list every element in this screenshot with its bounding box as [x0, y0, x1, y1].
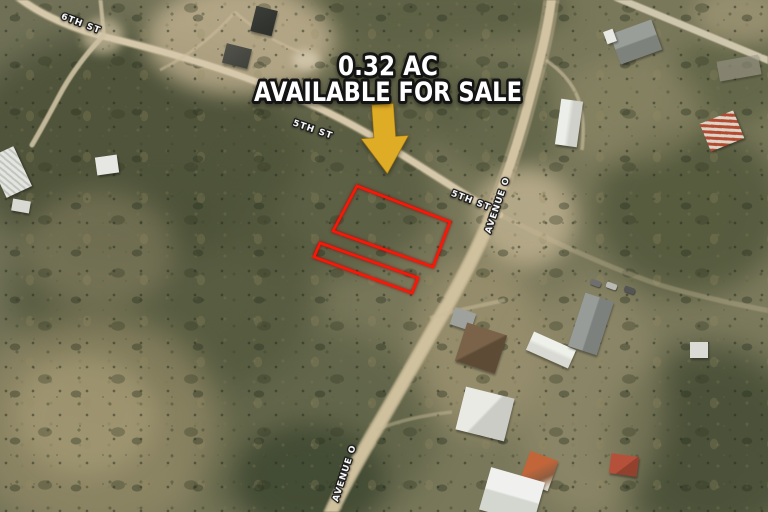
down-arrow-icon	[359, 102, 412, 175]
street-label-5th-st-east: 5TH ST	[449, 189, 492, 213]
headline-availability: AVAILABLE FOR SALE	[254, 77, 522, 108]
aerial-map: 0.32 AC AVAILABLE FOR SALE 6TH ST 5TH ST…	[0, 0, 768, 512]
street-label-6th-st: 6TH ST	[59, 12, 102, 36]
street-label-avenue-o-south: AVENUE O	[331, 444, 359, 503]
street-label-5th-st-west: 5TH ST	[291, 119, 334, 142]
parcel-outline-strip	[314, 243, 418, 293]
marketing-overlay: 0.32 AC AVAILABLE FOR SALE 6TH ST 5TH ST…	[0, 0, 768, 512]
